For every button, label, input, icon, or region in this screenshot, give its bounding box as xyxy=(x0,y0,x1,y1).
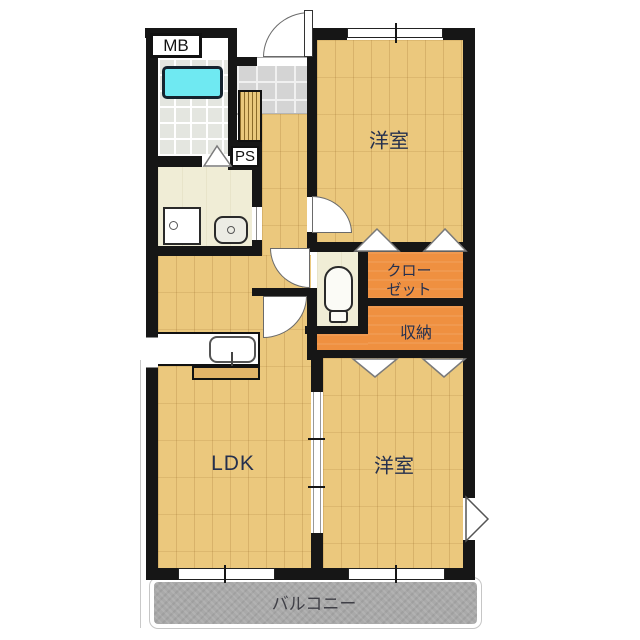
floor-plan: MB PS 洋室 クロー ゼット 収納 LDK 洋室 バルコニー xyxy=(0,0,640,640)
wall xyxy=(275,568,348,580)
toilet-tank-bowl xyxy=(324,266,353,312)
ldk-label: LDK xyxy=(211,452,255,476)
entrance-door-arc xyxy=(263,12,310,57)
kitchen-window xyxy=(146,337,158,368)
window-tick xyxy=(224,565,226,583)
closet-label-line2: ゼット xyxy=(386,279,431,300)
building-outline-line xyxy=(140,360,141,628)
wall xyxy=(311,358,323,392)
wall xyxy=(146,246,262,256)
window-tick xyxy=(395,23,397,43)
wall xyxy=(358,250,368,334)
wall xyxy=(307,38,317,197)
wall xyxy=(463,540,475,580)
balcony-label: バルコニー xyxy=(272,590,357,615)
washing-machine-knob xyxy=(169,221,178,230)
wall xyxy=(311,533,323,568)
wash-basin-drain xyxy=(227,226,235,234)
window xyxy=(178,568,275,580)
pipe-space-box: PS xyxy=(231,146,259,167)
washroom-door-leaf xyxy=(256,207,257,240)
pipe-space-label: PS xyxy=(235,148,255,165)
entry-threshold xyxy=(257,57,307,66)
wall xyxy=(146,368,158,580)
wall xyxy=(443,28,475,40)
closet-label-line1: クロー xyxy=(386,260,431,281)
storage-area-extension xyxy=(317,334,368,350)
washroom-door-opening xyxy=(252,207,262,240)
wall xyxy=(307,242,473,252)
side-window-opening xyxy=(463,498,475,540)
wall xyxy=(146,156,202,167)
entrance-door-leaf xyxy=(304,10,313,57)
kitchen-counter-bar xyxy=(192,366,260,380)
wall xyxy=(252,288,317,296)
wall xyxy=(307,350,473,358)
shoe-cabinet xyxy=(238,90,262,142)
wall xyxy=(463,33,475,498)
western-room-bottom-label: 洋室 xyxy=(374,450,414,479)
bathtub xyxy=(162,66,223,99)
wall xyxy=(252,167,262,207)
sliding-partition xyxy=(313,392,321,533)
partition-tick xyxy=(308,486,325,488)
meter-box: MB xyxy=(150,33,202,58)
storage-label: 収納 xyxy=(400,319,432,343)
wall xyxy=(146,28,158,337)
partition-tick xyxy=(308,438,325,440)
toilet-base xyxy=(329,310,348,323)
window-tick xyxy=(395,565,397,583)
kitchen-faucet xyxy=(231,352,233,366)
bathroom-door-opening xyxy=(202,156,230,167)
wall xyxy=(146,568,178,580)
wall xyxy=(305,326,368,334)
wall xyxy=(237,57,257,66)
meter-box-label: MB xyxy=(163,36,189,56)
western-room-top-label: 洋室 xyxy=(369,125,409,154)
